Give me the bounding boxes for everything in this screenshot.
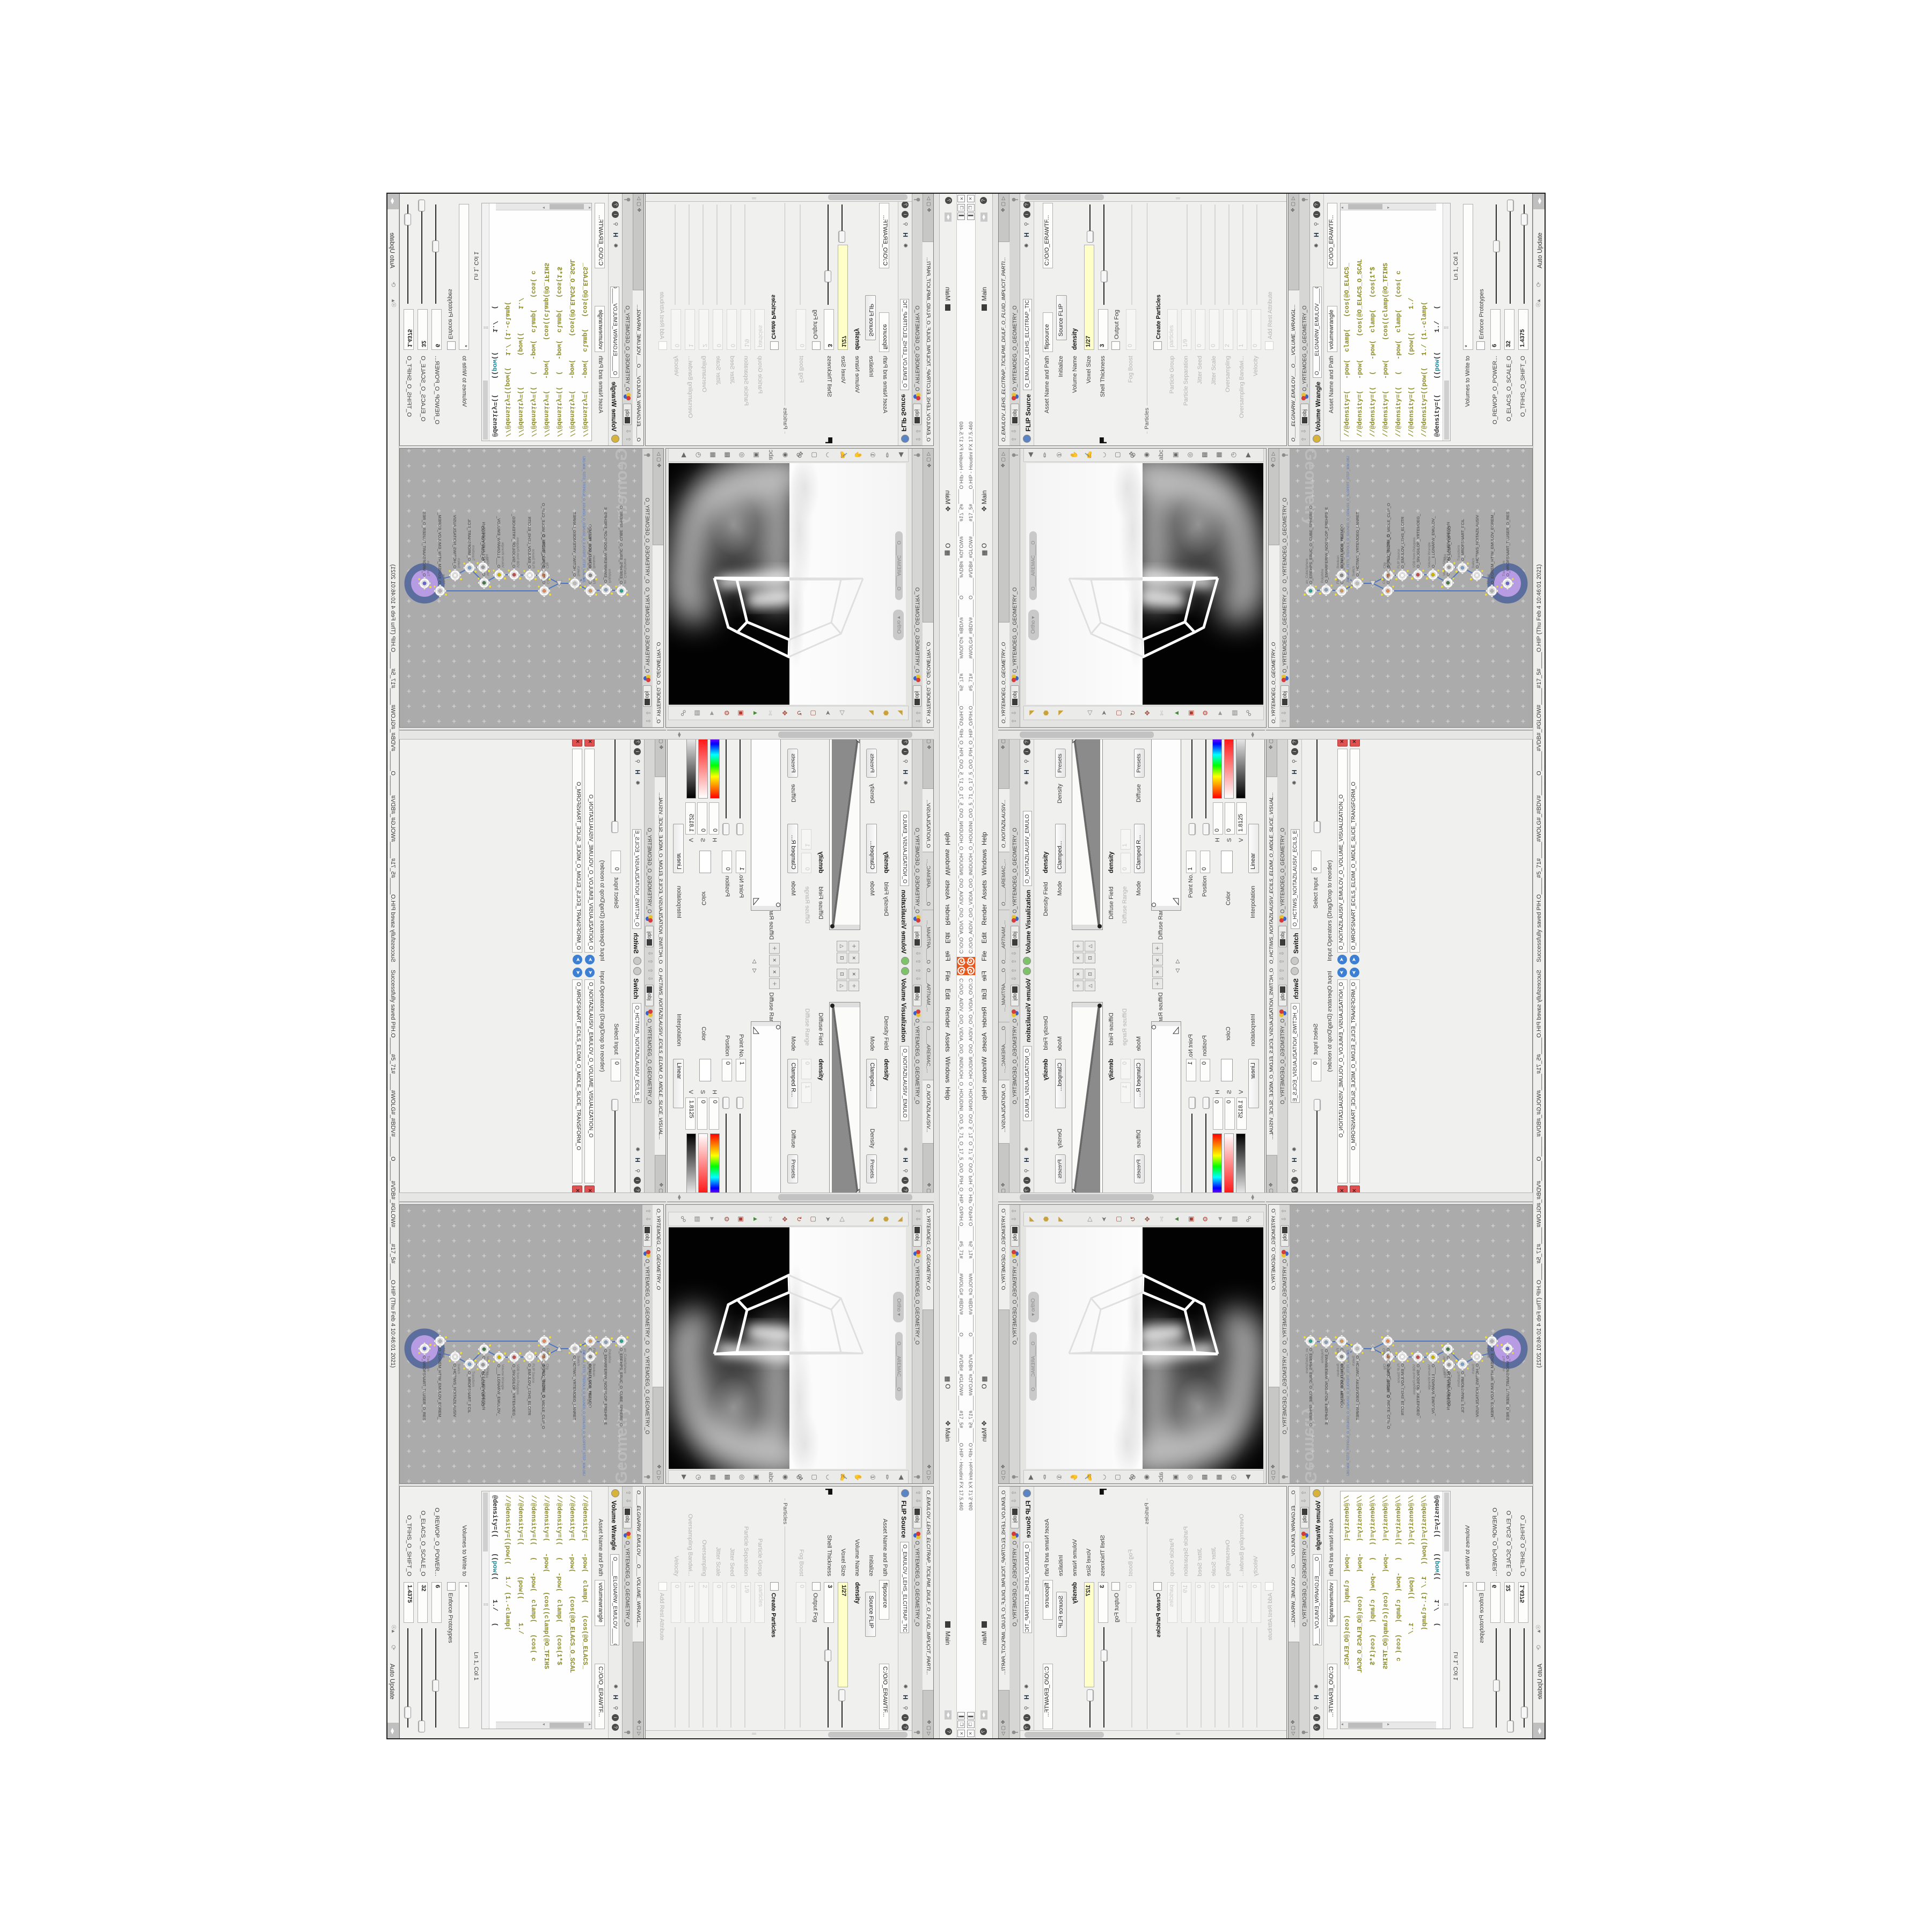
svg-text:O_EMARFERIW_NOGYLOP_EREHPS_E: O_EMARFERIW_NOGYLOP_EREHPS_E [1324,507,1329,583]
svg-text:O_EGREM_HTIW_EMULOV_EGREM_: O_EGREM_HTIW_EMULOV_EGREM_ [437,1348,442,1419]
svg-text:O_EMULOV_LEHS_ELCITR: O_EMULOV_LEHS_ELCITR [1400,516,1405,568]
svg-text:JBO.M03_PETS_TREPOLS_O_SOUNEG_: JBO.M03_PETS_TREPOLS_O_SOUNEG_O_GENUSS_O… [582,1349,585,1476]
svg-text:O_HCTIWS_YRTEMOEG_LANRET: O_HCTIWS_YRTEMOEG_LANRET [1355,1356,1360,1421]
svg-text:O_EREHPS_EBUC_O_CUBE_SPHERE_O: O_EREHPS_EBUC_O_CUBE_SPHERE_O [1308,506,1313,584]
svg-text:O___ELGNARW_EMULOV_: O___ELGNARW_EMULOV_ [1431,1364,1436,1416]
svg-text:O_NAELOOB_HSEM_O: O_NAELOOB_HSEM_O [588,1364,592,1408]
svg-text:O_PILC_ECILS_TNORF_O: O_PILC_ECILS_TNORF_O [1386,1348,1391,1398]
svg-text:O_EREHPS_EBUC_O_CUBE_SPHERE_O: O_EREHPS_EBUC_O_CUBE_SPHERE_O [1308,1348,1313,1426]
svg-text:O_EMULOV_LEHS_ELCITR: O_EMULOV_LEHS_ELCITR [527,516,532,568]
svg-text:O_EGREM_HTIW_EMULOV_EGREM_: O_EGREM_HTIW_EMULOV_EGREM_ [1490,1348,1495,1419]
svg-text:O_HCTIWS_NOITAZILAUSIV: O_HCTIWS_NOITAZILAUSIV [452,515,457,568]
svg-text:O_MROFSNART_ECIL: O_MROFSNART_ECIL [467,1371,472,1413]
svg-text:O_EMARFERIW_NOGYLOP_EREHPS_E: O_EMARFERIW_NOGYLOP_EREHPS_E [603,507,608,583]
svg-text:O_EMARFERIW_NOGYLOP_EREHPS_E: O_EMARFERIW_NOGYLOP_EREHPS_E [603,1349,608,1425]
svg-text:O_LLUN_TUPTUO: O_LLUN_TUPTUO [480,1372,485,1406]
svg-text:JBO.M03_PETS_TREPOLS_O_SOUNEG_: JBO.M03_PETS_TREPOLS_O_SOUNEG_O_GENUSS_O… [1347,456,1350,583]
svg-text:O_EGREM_HTIW_EMULOV_EGREM_: O_EGREM_HTIW_EMULOV_EGREM_ [1490,513,1495,584]
svg-text:O_EGREM_HTIW_EMULOV_EGREM_: O_EGREM_HTIW_EMULOV_EGREM_ [437,513,442,584]
svg-text:O_EMULOV_LEHS_ELCITR: O_EMULOV_LEHS_ELCITR [527,1364,532,1416]
svg-text:O_EMULOV_LEHS_ELCITR: O_EMULOV_LEHS_ELCITR [1400,1364,1405,1416]
svg-text:O_EREHPS_EBUC_O_CUBE_SPHERE_O: O_EREHPS_EBUC_O_CUBE_SPHERE_O [619,506,624,584]
svg-text:O_LLUN_TUPTUO: O_LLUN_TUPTUO [480,526,485,560]
svg-text:O_SNOGILOP_YRTEMOEG_: O_SNOGILOP_YRTEMOEG_ [1416,1364,1421,1418]
svg-text:JBO.M03_PETS_TREPOLS_O_SOUNEG_: JBO.M03_PETS_TREPOLS_O_SOUNEG_O_GENUSS_O… [1347,1349,1350,1476]
svg-text:O_PILC_ECILS_TNORF_O: O_PILC_ECILS_TNORF_O [1386,534,1391,584]
svg-text:O_HCTIWS_YRTEMOEG_LANRET: O_HCTIWS_YRTEMOEG_LANRET [572,1356,577,1421]
svg-text:O_HCTIWS_YRTEMOEG_LANRET: O_HCTIWS_YRTEMOEG_LANRET [572,511,577,576]
svg-text:O___ELGNARW_EMULOV_: O___ELGNARW_EMULOV_ [1431,516,1436,568]
svg-text:O_PILC_ECILS_TNORF_O: O_PILC_ECILS_TNORF_O [541,1348,546,1398]
svg-text:O_LLUN_TUPTUO: O_LLUN_TUPTUO [1447,1372,1452,1406]
svg-text:O_PILC_ECILS_TNORF_O: O_PILC_ECILS_TNORF_O [541,534,546,584]
svg-text:O_MROFSNART_TLUSER_O_RES: O_MROFSNART_TLUSER_O_RES [422,1356,427,1421]
svg-text:O_NAELOOB_HSEM_O: O_NAELOOB_HSEM_O [1340,524,1344,568]
svg-text:O___ELGNARW_EMULOV_: O___ELGNARW_EMULOV_ [496,516,501,568]
svg-text:O_NAELOOB_HSEM_O: O_NAELOOB_HSEM_O [588,524,592,568]
svg-text:O_MROFSNART_ECIL: O_MROFSNART_ECIL [467,519,472,561]
svg-text:O_SNOGILOP_YRTEMOEG_: O_SNOGILOP_YRTEMOEG_ [511,1364,516,1418]
svg-text:O_NAELOOB_HSEM_O: O_NAELOOB_HSEM_O [1340,1364,1344,1408]
svg-text:O_MROFSNART_TLUSER_O_RES: O_MROFSNART_TLUSER_O_RES [422,511,427,576]
svg-text:O_HCTIWS_NOITAZILAUSIV: O_HCTIWS_NOITAZILAUSIV [1475,1364,1480,1417]
svg-text:O___ELGNARW_EMULOV_: O___ELGNARW_EMULOV_ [496,1364,501,1416]
svg-text:O_SNOGILOP_YRTEMOEG_: O_SNOGILOP_YRTEMOEG_ [511,514,516,568]
svg-text:O_MROFSNART_ECIL: O_MROFSNART_ECIL [1460,1371,1465,1413]
svg-text:O_HCTIWS_NOITAZILAUSIV: O_HCTIWS_NOITAZILAUSIV [452,1364,457,1417]
svg-text:O_HCTIWS_YRTEMOEG_LANRET: O_HCTIWS_YRTEMOEG_LANRET [1355,511,1360,576]
svg-text:O_EREHPS_EBUC_O_CUBE_SPHERE_O: O_EREHPS_EBUC_O_CUBE_SPHERE_O [619,1348,624,1426]
svg-text:JBO.M03_PETS_TREPOLS_O_SOUNEG_: JBO.M03_PETS_TREPOLS_O_SOUNEG_O_GENUSS_O… [582,456,585,583]
svg-text:O_MROFSNART_ECIL: O_MROFSNART_ECIL [1460,519,1465,561]
svg-text:O_MROFSNART_TLUSER_O_RES: O_MROFSNART_TLUSER_O_RES [1505,1356,1510,1421]
svg-text:O_EMARFERIW_NOGYLOP_EREHPS_E: O_EMARFERIW_NOGYLOP_EREHPS_E [1324,1349,1329,1425]
svg-text:O_MROFSNART_TLUSER_O_RES: O_MROFSNART_TLUSER_O_RES [1505,511,1510,576]
svg-text:O_LLUN_TUPTUO: O_LLUN_TUPTUO [1447,526,1452,560]
svg-text:O_SNOGILOP_YRTEMOEG_: O_SNOGILOP_YRTEMOEG_ [1416,514,1421,568]
svg-text:O_HCTIWS_NOITAZILAUSIV: O_HCTIWS_NOITAZILAUSIV [1475,515,1480,568]
